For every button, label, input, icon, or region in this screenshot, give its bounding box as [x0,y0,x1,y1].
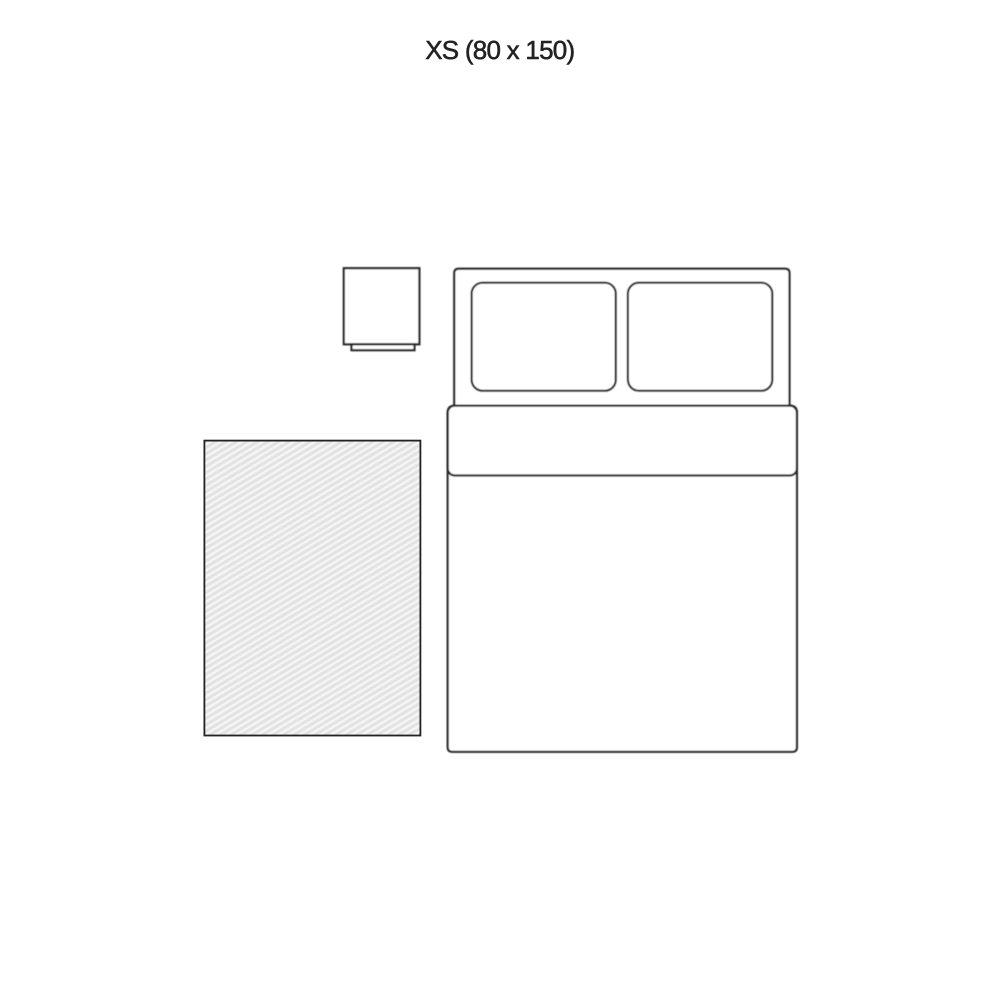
svg-text:XS (80 x 150): XS (80 x 150) [425,35,574,65]
